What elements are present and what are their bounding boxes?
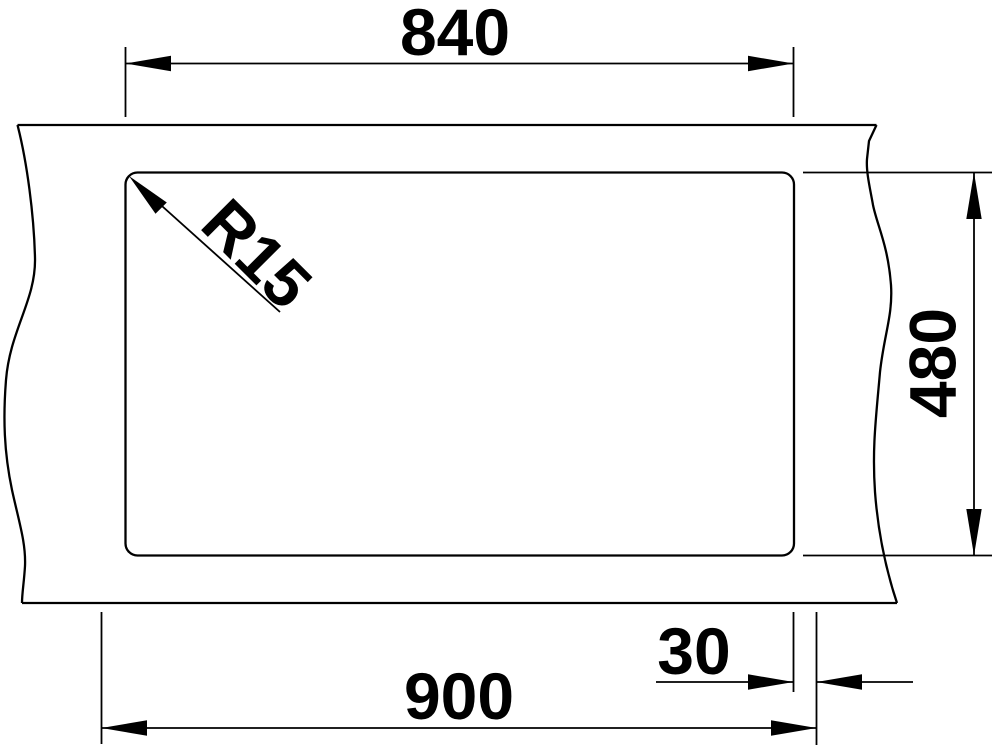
dim-480-right-height: 480 (803, 173, 992, 556)
radius-callout-r15: R15 (129, 176, 326, 323)
dim-840-top-width: 840 (126, 0, 794, 117)
dim-30-arrow-right (817, 674, 863, 689)
workpiece-outline (4, 125, 897, 603)
drawing-canvas: 840 900 30 480 (0, 0, 1000, 753)
dim-30-label: 30 (657, 614, 730, 688)
sink-dimension-drawing: 840 900 30 480 (0, 0, 1000, 753)
dim-30-arrow-left (748, 674, 794, 689)
dim-840-label: 840 (400, 0, 510, 69)
dim-480-arrow-bottom (966, 509, 981, 556)
dim-480-arrow-top (966, 173, 981, 220)
dim-840-arrow-left (126, 56, 172, 71)
dim-900-label: 900 (404, 659, 514, 733)
dim-900-arrow-left (102, 720, 148, 735)
break-line-left (4, 125, 35, 603)
dim-480-label: 480 (896, 308, 970, 418)
dim-840-arrow-right (748, 56, 794, 71)
r15-leader-arrow (129, 176, 167, 214)
r15-label: R15 (188, 185, 326, 323)
break-line-right (867, 125, 897, 603)
dim-900-arrow-right (771, 720, 817, 735)
dim-30-edge-offset: 30 (656, 612, 913, 692)
